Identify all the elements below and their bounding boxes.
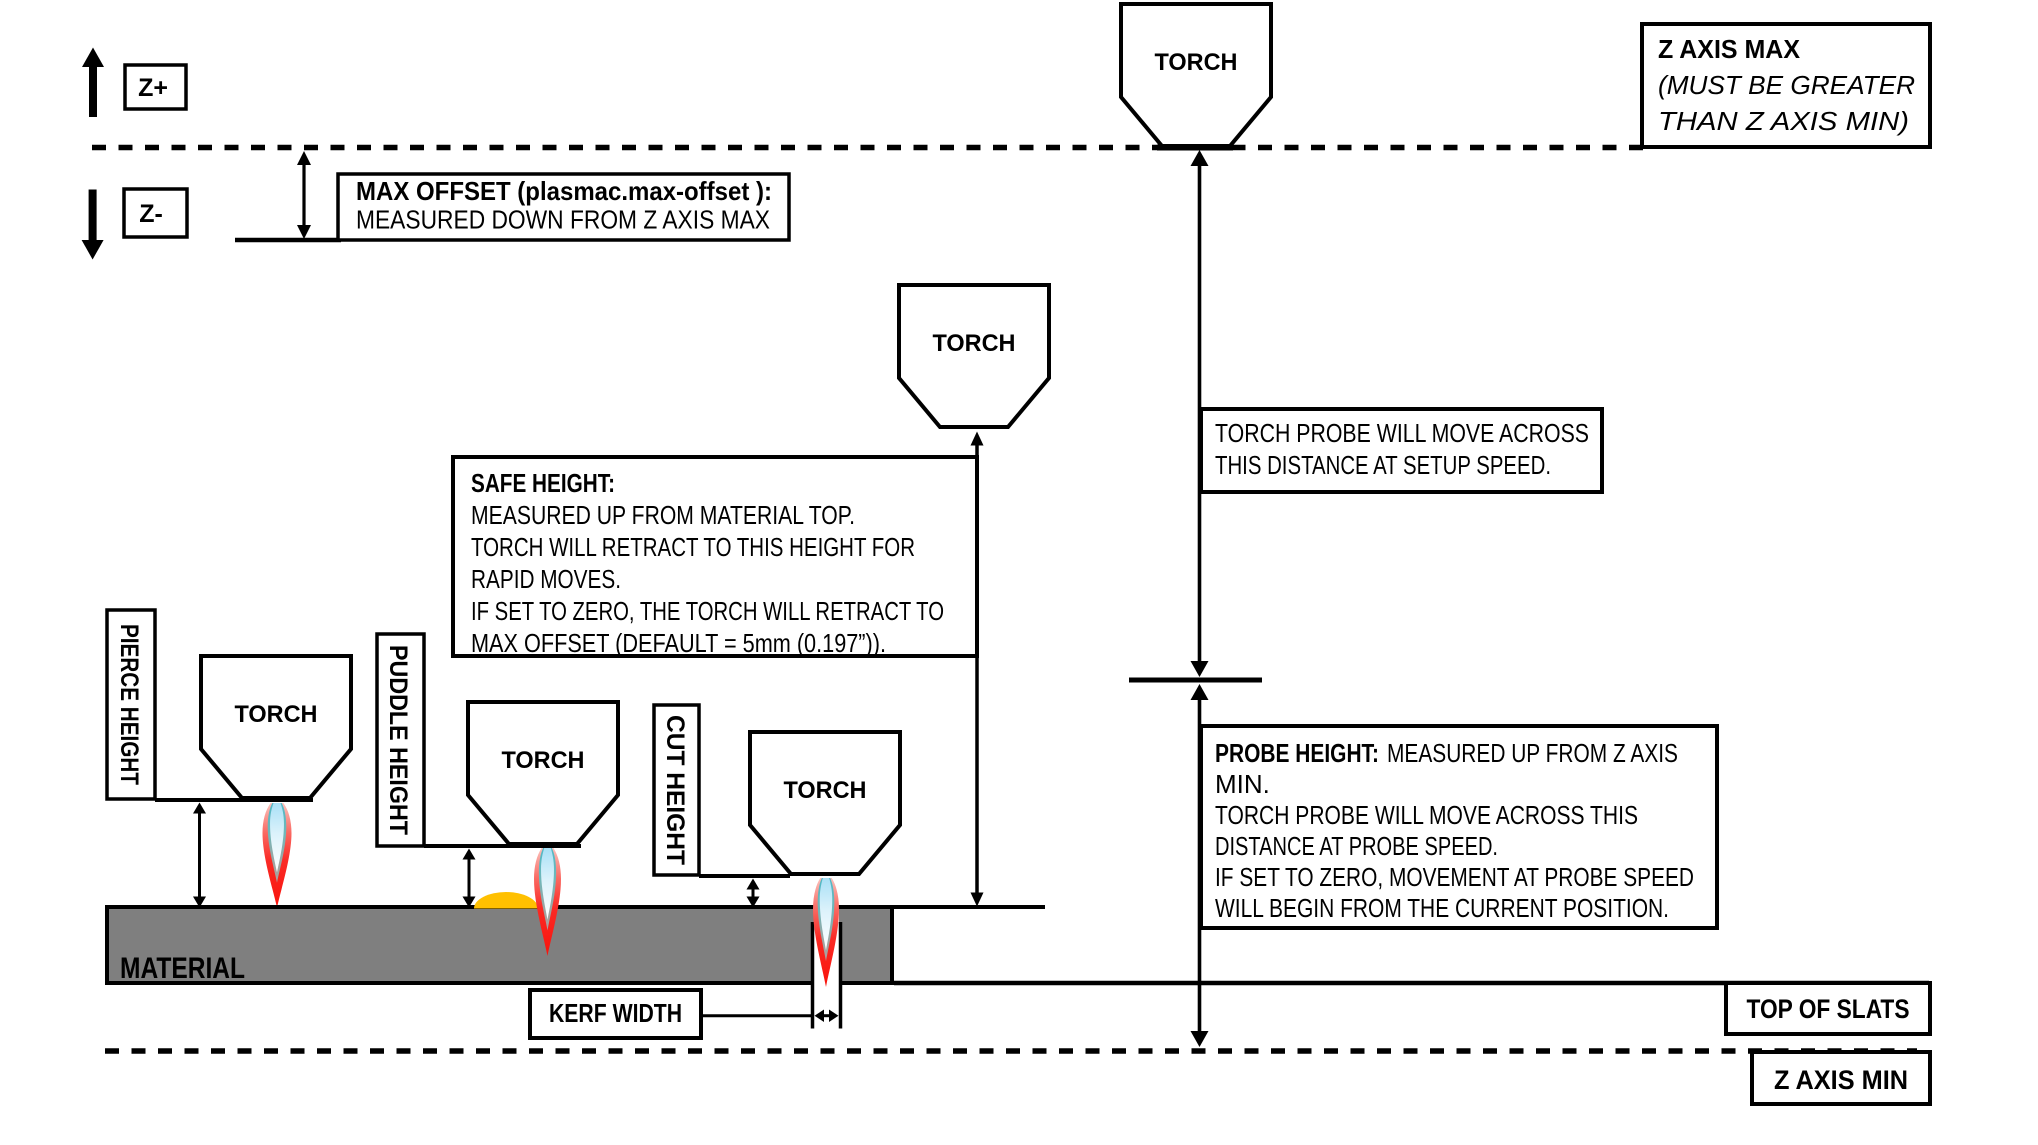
svg-text:MATERIAL: MATERIAL: [120, 952, 245, 985]
svg-text:MIN.: MIN.: [1215, 769, 1270, 799]
svg-text:MEASURED DOWN FROM Z AXIS MAX: MEASURED DOWN FROM Z AXIS MAX: [356, 205, 770, 235]
svg-text:PROBE HEIGHT:: PROBE HEIGHT:: [1215, 738, 1379, 768]
svg-text:IF SET TO ZERO, THE TORCH WILL: IF SET TO ZERO, THE TORCH WILL RETRACT T…: [471, 596, 944, 626]
svg-text:MEASURED UP FROM Z AXIS: MEASURED UP FROM Z AXIS: [1387, 738, 1678, 768]
svg-text:CUT HEIGHT: CUT HEIGHT: [661, 715, 689, 865]
svg-text:Z+: Z+: [138, 74, 168, 102]
svg-text:MAX OFFSET (plasmac.max-offset: MAX OFFSET (plasmac.max-offset ):: [356, 176, 772, 206]
svg-text:DISTANCE AT PROBE SPEED.: DISTANCE AT PROBE SPEED.: [1215, 831, 1498, 861]
svg-text:Z AXIS MIN: Z AXIS MIN: [1774, 1065, 1908, 1095]
svg-text:SAFE HEIGHT:: SAFE HEIGHT:: [471, 468, 615, 498]
svg-text:TOP OF SLATS: TOP OF SLATS: [1747, 994, 1910, 1024]
svg-text:WILL BEGIN FROM THE CURRENT PO: WILL BEGIN FROM THE CURRENT POSITION.: [1215, 893, 1669, 923]
svg-text:PIERCE HEIGHT: PIERCE HEIGHT: [115, 624, 143, 785]
svg-text:TORCH WILL RETRACT TO THIS HEI: TORCH WILL RETRACT TO THIS HEIGHT FOR: [471, 532, 915, 562]
svg-text:Z-: Z-: [139, 200, 163, 228]
svg-text:PUDDLE HEIGHT: PUDDLE HEIGHT: [384, 645, 412, 835]
svg-text:TORCH PROBE WILL MOVE ACROSS T: TORCH PROBE WILL MOVE ACROSS THIS: [1215, 800, 1638, 830]
svg-text:THAN Z AXIS MIN): THAN Z AXIS MIN): [1658, 106, 1909, 136]
svg-text:RAPID MOVES.: RAPID MOVES.: [471, 564, 621, 594]
svg-text:THIS DISTANCE AT SETUP SPEED.: THIS DISTANCE AT SETUP SPEED.: [1215, 450, 1551, 480]
svg-text:KERF WIDTH: KERF WIDTH: [549, 998, 682, 1028]
svg-text:MAX OFFSET (DEFAULT = 5mm (0.1: MAX OFFSET (DEFAULT = 5mm (0.197”)).: [471, 628, 886, 658]
svg-text:TORCH PROBE WILL MOVE ACROSS: TORCH PROBE WILL MOVE ACROSS: [1215, 418, 1589, 448]
svg-text:IF SET TO ZERO, MOVEMENT AT P: IF SET TO ZERO, MOVEMENT AT PROBE SPEED: [1215, 862, 1694, 892]
svg-text:(MUST BE GREATER: (MUST BE GREATER: [1658, 70, 1915, 100]
svg-text:Z AXIS MAX: Z AXIS MAX: [1658, 34, 1801, 64]
svg-text:MEASURED UP FROM MATERIAL TOP.: MEASURED UP FROM MATERIAL TOP.: [471, 500, 855, 530]
